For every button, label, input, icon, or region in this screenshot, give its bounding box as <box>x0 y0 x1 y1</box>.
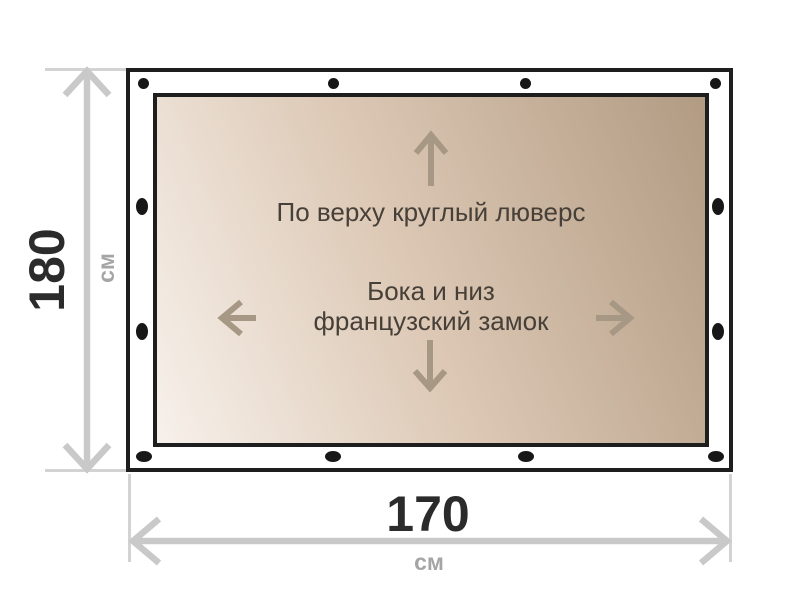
french-lock-icon <box>712 323 724 340</box>
french-lock-icon <box>712 198 724 215</box>
round-grommet-icon <box>138 78 149 89</box>
sides-fastener-note: Бока и низ французский замок <box>157 276 705 336</box>
french-lock-icon <box>136 451 152 462</box>
round-grommet-icon <box>520 78 531 89</box>
top-fastener-note: По верху круглый люверс <box>157 199 705 225</box>
round-grommet-icon <box>710 78 721 89</box>
french-lock-icon <box>518 451 534 462</box>
height-dimension-value: 180 <box>17 190 77 350</box>
sides-fastener-note-line2: французский замок <box>157 306 705 336</box>
sides-fastener-note-line1: Бока и низ <box>157 276 705 306</box>
arrow-down-icon <box>410 338 450 392</box>
round-grommet-icon <box>328 78 339 89</box>
arrow-up-icon <box>411 128 451 188</box>
french-lock-icon <box>136 198 148 215</box>
french-lock-icon <box>708 451 724 462</box>
french-lock-icon <box>136 323 148 340</box>
height-dimension-unit: см <box>91 238 121 298</box>
french-lock-icon <box>325 451 341 462</box>
width-dimension-value: 170 <box>328 487 528 541</box>
width-dimension-unit: см <box>379 549 479 575</box>
tarp-dimension-diagram: 180 см <box>0 0 800 600</box>
